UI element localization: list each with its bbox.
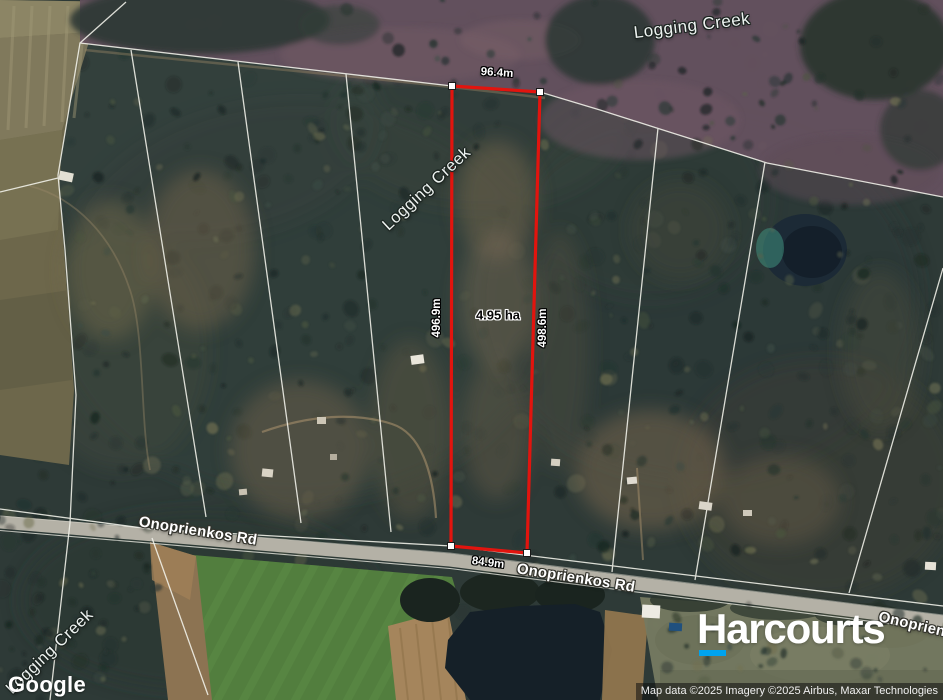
google-logo[interactable]: Google xyxy=(8,672,86,698)
parcel-vertex-marker xyxy=(537,89,544,96)
parcel-vertex-marker xyxy=(524,550,531,557)
satellite-map[interactable]: Logging Creek Logging Creek Logging Cree… xyxy=(0,0,943,700)
map-attribution: Map data ©2025 Imagery ©2025 Airbus, Max… xyxy=(636,683,943,700)
harcourts-logo: Harcourts xyxy=(697,608,885,650)
parcel-vertex-marker xyxy=(448,543,455,550)
parcel-vertex-marker xyxy=(449,83,456,90)
satellite-imagery xyxy=(0,0,943,700)
harcourts-underline xyxy=(699,650,726,656)
harcourts-wordmark: Harcourts xyxy=(697,608,885,650)
